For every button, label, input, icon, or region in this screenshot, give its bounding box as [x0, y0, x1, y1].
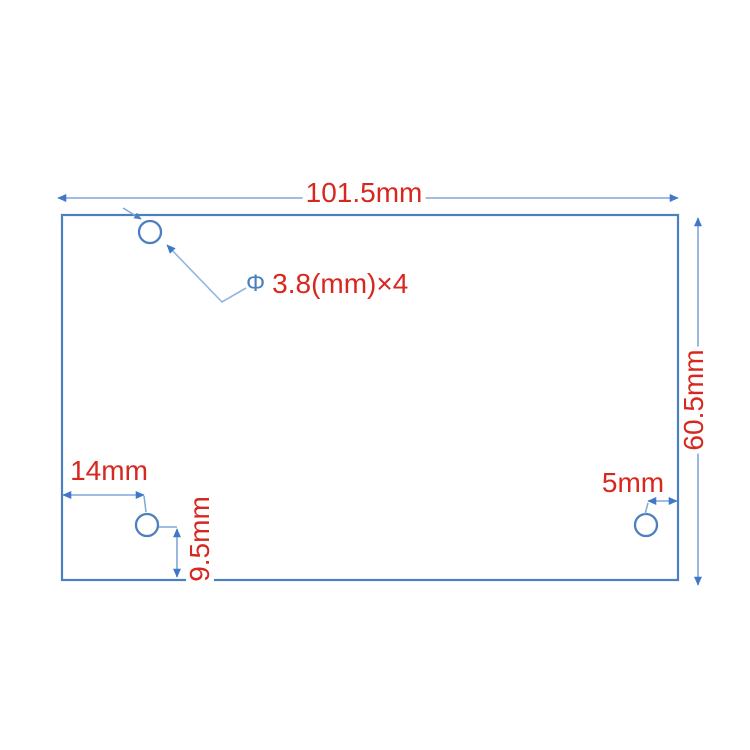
- board-height-label: 60.5mm: [680, 346, 708, 453]
- hole-offset-bottom-label: 9.5mm: [186, 493, 214, 585]
- diagram-linework: [0, 0, 750, 750]
- hole-diameter-note: Φ 3.8(mm)×4: [246, 270, 408, 298]
- hole-offset-left-label: 14mm: [67, 457, 151, 485]
- mounting-hole-top-left: [139, 221, 161, 243]
- diameter-symbol: Φ: [246, 272, 265, 296]
- dimension-diagram: 101.5mm 60.5mm Φ 3.8(mm)×4 14mm 9.5mm 5m…: [0, 0, 750, 750]
- mounting-hole-bottom-left: [136, 514, 158, 536]
- hole-diameter-label: 3.8(mm)×4: [272, 270, 408, 298]
- hole-offset-right-label: 5mm: [599, 469, 667, 497]
- board-width-label: 101.5mm: [303, 179, 426, 207]
- mounting-hole-bottom-right: [635, 514, 657, 536]
